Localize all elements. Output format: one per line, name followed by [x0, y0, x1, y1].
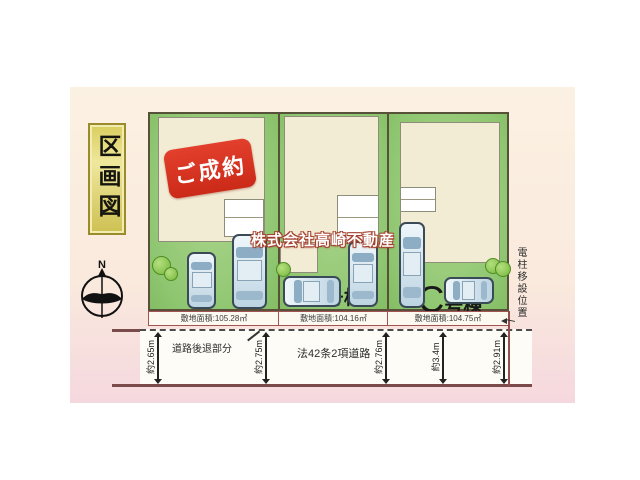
road-width-label: 約3.4m: [429, 334, 439, 380]
car-windshield: [453, 281, 460, 301]
car-roof: [237, 260, 262, 281]
car-topview: [399, 222, 425, 308]
compass-north-label: N: [98, 259, 106, 271]
car-windshield: [352, 253, 374, 262]
car-rear-window: [352, 291, 374, 299]
car-topview: [444, 277, 494, 304]
road-width-label: 約2.65m: [144, 334, 154, 380]
road-width-label: 約2.75m: [252, 334, 262, 380]
shrub-icon: [276, 262, 291, 277]
lot-c-area-label: 敷地面積:104.75㎡: [387, 311, 509, 326]
plot-layout-diagram: 区画図 N ご成約 B号棟: [0, 0, 640, 480]
road-type-label: 法42条2項道路: [297, 345, 370, 361]
car-topview: [283, 276, 341, 307]
car-rear-window: [191, 295, 213, 302]
road-setback-label: 道路後退部分: [172, 340, 232, 355]
car-windshield: [403, 237, 422, 249]
company-watermark: 株式会社高崎不動産: [251, 229, 395, 250]
lot-c-porch: [400, 187, 436, 212]
diagram-title-box: 区画図: [88, 123, 126, 235]
car-roof: [303, 281, 319, 303]
lot-b-area-label: 敷地面積:104.16㎡: [278, 311, 389, 326]
car-roof: [353, 264, 374, 283]
car-rear-window: [236, 291, 263, 300]
car-roof: [462, 281, 476, 299]
car-rear-window: [327, 280, 334, 303]
shrub-icon: [164, 267, 178, 281]
car-rear-window: [403, 287, 422, 298]
shrub-icon: [495, 261, 511, 277]
compass-icon: [76, 262, 128, 322]
diagram-title: 区画図: [90, 134, 124, 224]
car-topview: [348, 241, 378, 307]
car-rear-window: [481, 281, 487, 301]
car-roof: [403, 252, 421, 277]
car-roof: [192, 272, 212, 288]
road-width-label: 約2.76m: [372, 334, 382, 380]
car-windshield: [191, 262, 213, 270]
utility-pole-label: 電柱移設位置: [513, 247, 528, 319]
car-topview: [187, 252, 216, 309]
lot-a-area-label: 敷地面積:105.28㎡: [148, 311, 280, 326]
road-edge-line: [112, 329, 140, 332]
road-boundary-line: [112, 384, 532, 387]
car-windshield: [294, 280, 302, 303]
sold-badge-label: ご成約: [172, 147, 248, 190]
road-width-label: 約2.91m: [490, 334, 500, 380]
